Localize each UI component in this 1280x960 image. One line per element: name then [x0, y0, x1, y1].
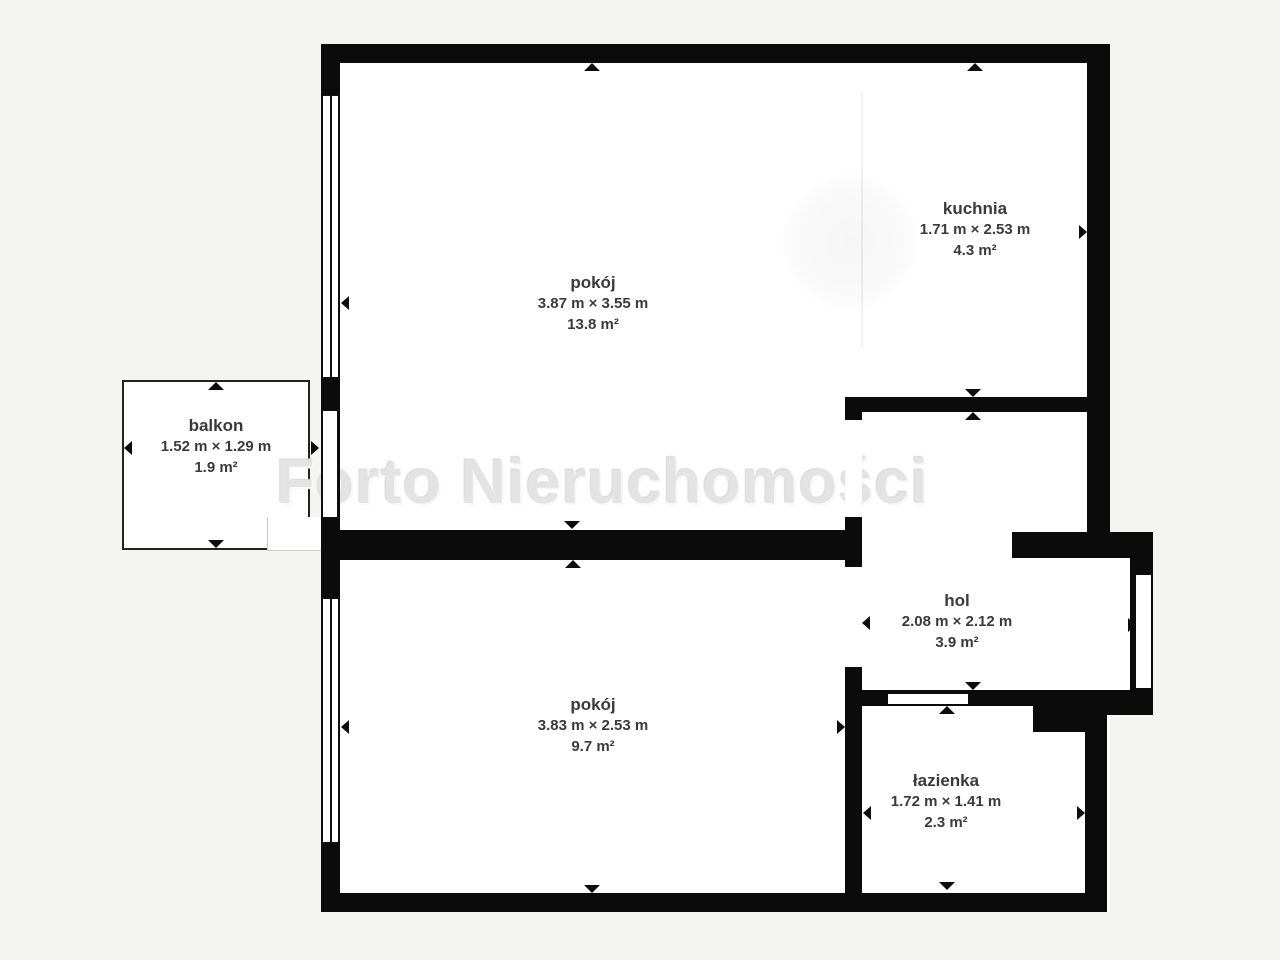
wall-kitchen-bottom [845, 397, 1110, 412]
room-dimensions: 3.87 m × 3.55 m [443, 293, 743, 314]
floor-plan: Forto Nieruchomości pokój 3.87 m × 3.55 … [0, 0, 1280, 960]
arrow-up-icon [565, 560, 581, 568]
arrow-down-icon [584, 885, 600, 893]
arrow-right-icon [1128, 618, 1136, 632]
room-label-balkon: balkon 1.52 m × 1.29 m 1.9 m² [66, 415, 366, 478]
room-area: 3.9 m² [807, 632, 1107, 653]
wall-top [321, 44, 1110, 63]
room-name: pokój [443, 694, 743, 715]
room-label-lazienka: łazienka 1.72 m × 1.41 m 2.3 m² [796, 770, 1096, 833]
window-mullion [330, 599, 332, 842]
room-area: 2.3 m² [796, 812, 1096, 833]
arrow-left-icon [124, 441, 132, 455]
arrow-down-icon [208, 540, 224, 548]
arrow-left-icon [863, 806, 871, 820]
room-area: 4.3 m² [825, 240, 1125, 261]
room-area: 13.8 m² [443, 314, 743, 335]
arrow-right-icon [837, 720, 845, 734]
arrow-up-icon [584, 63, 600, 71]
room-label-hol: hol 2.08 m × 2.12 m 3.9 m² [807, 590, 1107, 653]
room-name: balkon [66, 415, 366, 436]
room-area: 1.9 m² [66, 457, 366, 478]
room-label-pokoj-top: pokój 3.87 m × 3.55 m 13.8 m² [443, 272, 743, 335]
room-name: łazienka [796, 770, 1096, 791]
wall-bathroom-notch [1033, 706, 1107, 732]
room-area: 9.7 m² [443, 736, 743, 757]
door-opening-hol-upper [845, 420, 862, 517]
arrow-down-icon [965, 389, 981, 397]
window-mullion [330, 96, 332, 377]
window-icon [322, 95, 339, 378]
arrow-up-icon [939, 706, 955, 714]
room-name: pokój [443, 272, 743, 293]
arrow-down-icon [939, 882, 955, 890]
arrow-right-icon [311, 441, 319, 455]
room-dimensions: 2.08 m × 2.12 m [807, 611, 1107, 632]
entrance-door-opening [1136, 575, 1151, 688]
wall-bottom [321, 893, 1107, 912]
door-opening-bathroom [888, 694, 968, 704]
arrow-up-icon [208, 382, 224, 390]
wall-right-upper [1087, 44, 1110, 532]
arrow-right-icon [1079, 225, 1087, 239]
room-name: hol [807, 590, 1107, 611]
balcony-threshold [267, 517, 321, 551]
room-label-pokoj-bottom: pokój 3.83 m × 2.53 m 9.7 m² [443, 694, 743, 757]
arrow-right-icon [1077, 806, 1085, 820]
window-icon [322, 598, 339, 843]
room-dimensions: 3.83 m × 2.53 m [443, 715, 743, 736]
wall-middle-horizontal [340, 530, 862, 560]
wall-hol-top-right [1012, 532, 1153, 558]
arrow-up-icon [965, 412, 981, 420]
arrow-down-icon [564, 521, 580, 529]
arrow-left-icon [862, 616, 870, 630]
room-name: kuchnia [825, 198, 1125, 219]
room-dimensions: 1.72 m × 1.41 m [796, 791, 1096, 812]
arrow-down-icon [965, 682, 981, 690]
watermark: Forto Nieruchomości [276, 446, 929, 518]
arrow-left-icon [341, 296, 349, 310]
room-dimensions: 1.52 m × 1.29 m [66, 436, 366, 457]
arrow-up-icon [967, 63, 983, 71]
arrow-left-icon [341, 720, 349, 734]
